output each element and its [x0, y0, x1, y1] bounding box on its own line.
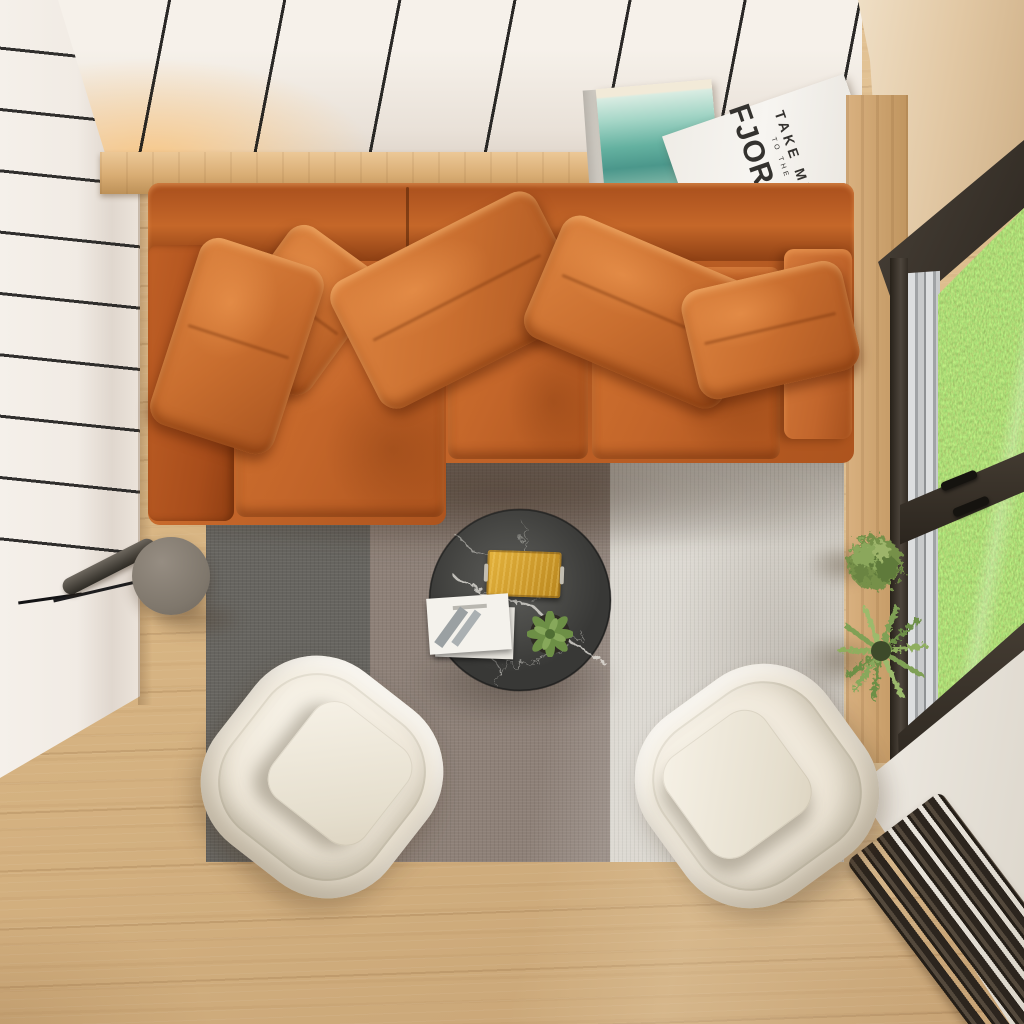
succulent-plant [527, 611, 573, 657]
yellow-tray [486, 550, 562, 599]
potted-bush-plant [836, 524, 914, 602]
floor-lamp-shade [132, 537, 210, 615]
magazine [426, 593, 512, 655]
living-room-render: TAKE ME TO THE FJORDS [0, 0, 1024, 1024]
tray-handle [560, 566, 565, 584]
tray-handle [484, 564, 489, 582]
